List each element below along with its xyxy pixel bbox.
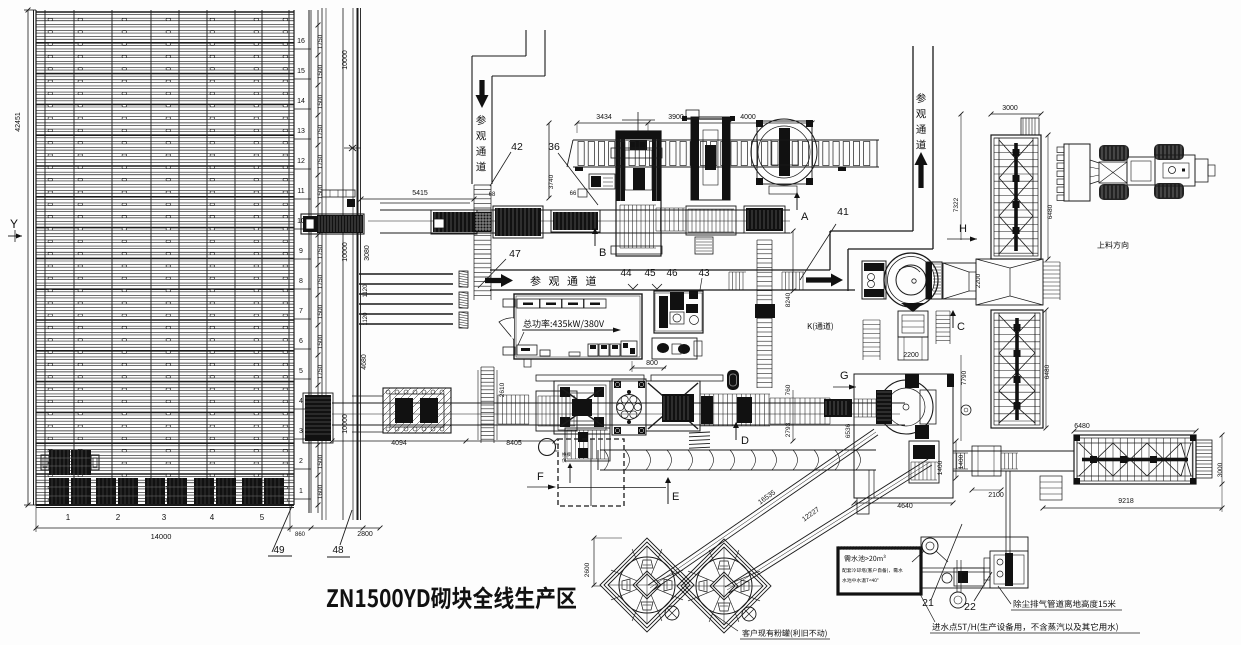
svg-text:66: 66	[570, 191, 577, 197]
svg-text:1: 1	[299, 488, 303, 495]
svg-text:3900: 3900	[668, 114, 684, 121]
svg-text:21: 21	[922, 597, 934, 609]
svg-text:1500: 1500	[317, 94, 324, 109]
svg-text:10000: 10000	[342, 414, 349, 434]
svg-text:7790: 7790	[961, 370, 968, 385]
svg-text:2100: 2100	[988, 492, 1004, 499]
svg-text:2600: 2600	[584, 562, 591, 577]
svg-text:68: 68	[489, 192, 496, 198]
svg-text:1: 1	[66, 513, 71, 522]
svg-text:2800: 2800	[357, 531, 373, 538]
svg-text:1750: 1750	[317, 244, 324, 259]
svg-text:46: 46	[666, 268, 678, 279]
svg-text:1400: 1400	[958, 454, 965, 469]
svg-text:7: 7	[299, 308, 303, 315]
svg-text:F: F	[537, 471, 544, 483]
svg-text:B: B	[599, 247, 606, 259]
svg-text:5: 5	[260, 513, 265, 522]
svg-text:8240: 8240	[785, 292, 792, 307]
svg-text:44: 44	[620, 268, 632, 279]
svg-text:42451: 42451	[15, 112, 22, 132]
svg-text:A: A	[801, 211, 809, 223]
svg-text:6: 6	[299, 338, 303, 345]
svg-text:14000: 14000	[151, 532, 172, 541]
svg-text:4640: 4640	[897, 503, 913, 510]
svg-text:36: 36	[548, 141, 560, 153]
svg-text:47: 47	[509, 248, 521, 260]
svg-text:10000: 10000	[342, 50, 349, 70]
svg-text:12: 12	[297, 158, 305, 165]
svg-text:7322: 7322	[953, 197, 960, 212]
svg-text:49: 49	[273, 545, 285, 556]
svg-text:E: E	[672, 491, 679, 503]
svg-text:860: 860	[295, 532, 306, 538]
svg-text:9: 9	[299, 248, 303, 255]
svg-text:10000: 10000	[342, 242, 349, 262]
svg-text:6480: 6480	[1044, 364, 1051, 379]
svg-text:1120: 1120	[363, 284, 369, 298]
svg-text:8: 8	[299, 278, 303, 285]
svg-text:5415: 5415	[412, 190, 428, 197]
svg-text:1400: 1400	[937, 460, 944, 475]
svg-text:1600: 1600	[317, 484, 324, 499]
svg-text:1750: 1750	[317, 364, 324, 379]
svg-text:760: 760	[785, 384, 792, 395]
svg-text:D: D	[741, 435, 749, 447]
svg-text:1750: 1750	[317, 154, 324, 169]
svg-text:H: H	[959, 223, 967, 235]
svg-text:22: 22	[964, 601, 976, 613]
svg-text:4: 4	[299, 398, 303, 405]
svg-text:3000: 3000	[1217, 462, 1224, 477]
svg-text:3: 3	[299, 428, 303, 435]
svg-text:2793: 2793	[785, 422, 792, 437]
svg-text:4680: 4680	[361, 354, 368, 370]
svg-text:13: 13	[297, 128, 305, 135]
svg-text:1500: 1500	[317, 64, 324, 79]
svg-text:1500: 1500	[317, 304, 324, 319]
svg-text:5: 5	[299, 368, 303, 375]
svg-text:2: 2	[116, 513, 121, 522]
svg-text:45: 45	[644, 268, 656, 279]
svg-text:3: 3	[162, 513, 167, 522]
svg-text:11: 11	[297, 188, 304, 195]
svg-text:43: 43	[698, 268, 710, 279]
svg-text:1500: 1500	[317, 334, 324, 349]
svg-text:6536: 6536	[845, 423, 852, 438]
svg-text:42: 42	[511, 141, 523, 153]
svg-text:1750: 1750	[317, 124, 324, 139]
svg-text:3080: 3080	[364, 245, 371, 261]
svg-text:C: C	[957, 321, 965, 333]
svg-text:41: 41	[837, 206, 849, 218]
svg-text:1750: 1750	[317, 34, 324, 49]
svg-text:1500: 1500	[317, 454, 324, 469]
svg-text:9218: 9218	[1118, 498, 1134, 505]
svg-text:2200: 2200	[903, 352, 919, 359]
svg-text:14: 14	[297, 98, 305, 105]
svg-text:4000: 4000	[740, 114, 756, 121]
svg-text:1120: 1120	[363, 312, 369, 326]
svg-text:15: 15	[297, 68, 305, 75]
svg-text:1750: 1750	[317, 274, 324, 289]
svg-text:16: 16	[297, 38, 305, 45]
svg-text:48: 48	[332, 545, 344, 556]
svg-text:Y: Y	[10, 217, 18, 231]
svg-text:4: 4	[210, 513, 215, 522]
svg-text:3740: 3740	[548, 174, 555, 189]
svg-text:800: 800	[646, 360, 658, 367]
svg-text:2: 2	[299, 458, 303, 465]
svg-text:3000: 3000	[1002, 105, 1018, 112]
svg-text:3434: 3434	[596, 114, 612, 121]
svg-text:G: G	[840, 370, 849, 382]
